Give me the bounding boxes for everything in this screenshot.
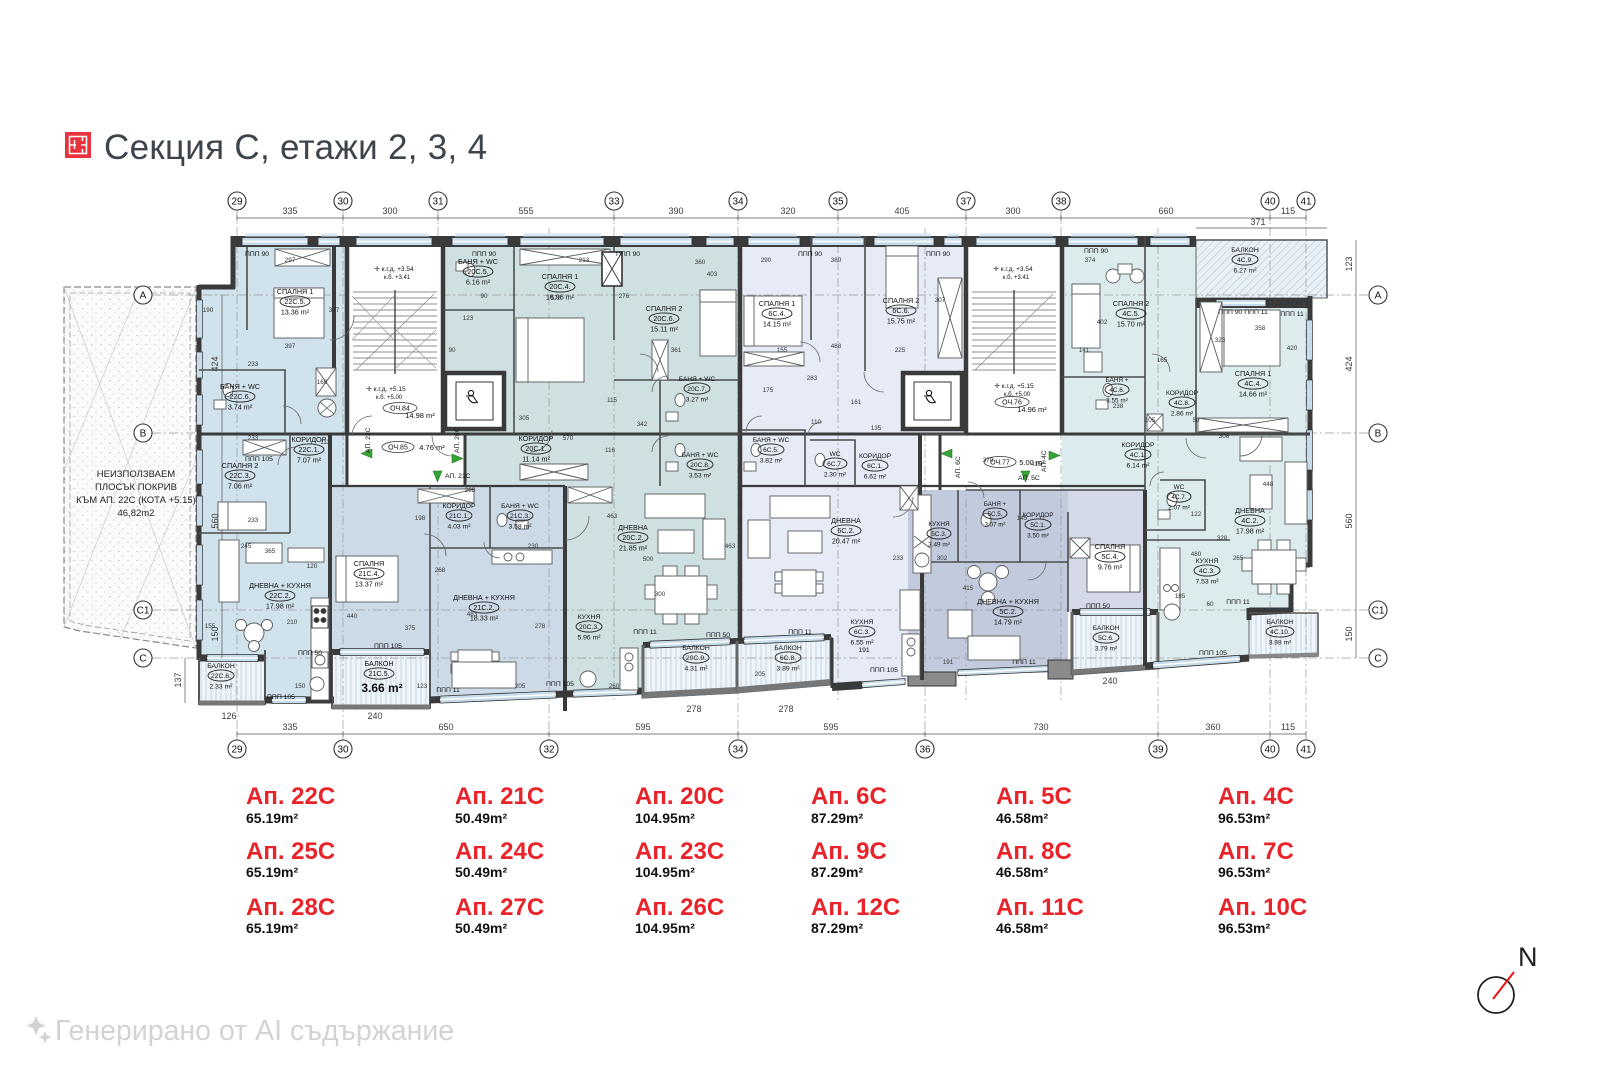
svg-text:115: 115 — [1281, 722, 1295, 732]
svg-text:СПАЛНЯ 1: СПАЛНЯ 1 — [1235, 369, 1271, 378]
svg-text:4.31 m²: 4.31 m² — [684, 666, 708, 673]
svg-text:22C.1.: 22C.1. — [298, 445, 319, 454]
svg-text:90: 90 — [448, 347, 456, 354]
svg-text:20C.3.: 20C.3. — [579, 624, 599, 631]
svg-text:5.96 m²: 5.96 m² — [577, 635, 601, 642]
svg-text:21C.4.: 21C.4. — [358, 569, 379, 578]
svg-text:245: 245 — [241, 543, 252, 550]
svg-text:323: 323 — [1215, 337, 1226, 344]
svg-text:34: 34 — [732, 744, 744, 755]
svg-text:305: 305 — [519, 415, 530, 422]
svg-text:Ап. 27C: Ап. 27C — [455, 894, 544, 921]
svg-text:463: 463 — [725, 543, 736, 550]
svg-text:ДНЕВНА: ДНЕВНА — [618, 523, 648, 532]
svg-text:4C.7.: 4C.7. — [1171, 494, 1186, 501]
svg-text:КУХНЯ: КУХНЯ — [928, 521, 950, 528]
svg-text:104.95m²: 104.95m² — [635, 810, 695, 826]
svg-text:3.49 m²: 3.49 m² — [928, 542, 950, 549]
svg-text:4C.5.: 4C.5. — [1122, 309, 1139, 318]
svg-text:КОРИДОР: КОРИДОР — [519, 434, 554, 443]
svg-text:БАНЯ + WC: БАНЯ + WC — [679, 376, 716, 383]
svg-text:5C.3.: 5C.3. — [931, 531, 946, 538]
svg-text:90: 90 — [480, 293, 488, 300]
svg-text:87.29m²: 87.29m² — [811, 864, 863, 880]
svg-text:АП. 4C: АП. 4C — [1041, 450, 1048, 472]
svg-text:КОРИДОР: КОРИДОР — [859, 453, 892, 460]
svg-text:КУХНЯ: КУХНЯ — [578, 614, 601, 621]
svg-text:5C.6.: 5C.6. — [1098, 635, 1114, 642]
svg-text:СПАЛНЯ: СПАЛНЯ — [354, 559, 384, 568]
svg-text:15.75 m²: 15.75 m² — [887, 317, 916, 326]
svg-text:448: 448 — [1263, 481, 1274, 488]
svg-text:375: 375 — [405, 625, 416, 632]
svg-text:22C.6.: 22C.6. — [229, 392, 250, 401]
svg-text:ППП 105: ППП 105 — [1199, 650, 1227, 657]
svg-text:141: 141 — [1079, 347, 1090, 354]
svg-text:КУХНЯ: КУХНЯ — [1196, 558, 1219, 565]
svg-text:268: 268 — [465, 487, 476, 494]
svg-text:191: 191 — [943, 659, 954, 666]
svg-text:✛ к.г.д. +3.54: ✛ к.г.д. +3.54 — [993, 265, 1033, 273]
svg-text:14.96 m²: 14.96 m² — [1017, 405, 1047, 414]
svg-text:41: 41 — [1300, 196, 1312, 207]
svg-text:3.89 m²: 3.89 m² — [776, 666, 800, 673]
svg-text:3.58 m²: 3.58 m² — [508, 524, 532, 531]
svg-text:105: 105 — [1145, 417, 1156, 424]
svg-text:СПАЛНЯ 2: СПАЛНЯ 2 — [646, 304, 682, 313]
svg-text:ППП 90: ППП 90 — [245, 251, 269, 258]
svg-text:Ап. 7C: Ап. 7C — [1218, 838, 1294, 865]
svg-text:АП. 22C: АП. 22C — [365, 427, 372, 453]
svg-text:175: 175 — [763, 387, 774, 394]
svg-text:ДНЕВНА: ДНЕВНА — [1235, 506, 1265, 515]
svg-text:374: 374 — [1085, 257, 1096, 264]
svg-text:302: 302 — [937, 555, 948, 562]
svg-text:Ап. 23C: Ап. 23C — [635, 838, 724, 865]
svg-text:41: 41 — [1300, 744, 1312, 755]
svg-text:WC: WC — [1174, 484, 1185, 491]
svg-text:17.98 m²: 17.98 m² — [266, 602, 295, 611]
svg-text:137: 137 — [173, 672, 183, 687]
svg-text:6C.8.: 6C.8. — [780, 655, 796, 662]
svg-text:36: 36 — [919, 744, 931, 755]
svg-text:60: 60 — [1206, 601, 1214, 608]
svg-text:C1: C1 — [137, 605, 150, 616]
svg-text:ППП 11: ППП 11 — [633, 629, 657, 636]
svg-text:300: 300 — [655, 591, 666, 598]
svg-text:ДНЕВНА: ДНЕВНА — [831, 516, 861, 525]
svg-text:20.47 m²: 20.47 m² — [832, 537, 861, 546]
svg-text:50: 50 — [1192, 417, 1200, 424]
svg-text:СПАЛНЯ 1: СПАЛНЯ 1 — [277, 287, 313, 296]
svg-text:Секция C, етажи 2, 3, 4: Секция C, етажи 2, 3, 4 — [104, 128, 487, 167]
svg-text:96.53m²: 96.53m² — [1218, 920, 1270, 936]
svg-text:АП. 20C: АП. 20C — [454, 427, 461, 453]
svg-text:371: 371 — [1250, 217, 1265, 227]
svg-text:Ап. 9C: Ап. 9C — [811, 838, 887, 865]
svg-text:65.19m²: 65.19m² — [246, 810, 298, 826]
svg-text:НЕИЗПОЛЗВАЕМ: НЕИЗПОЛЗВАЕМ — [97, 469, 176, 480]
svg-text:320: 320 — [780, 206, 795, 216]
svg-text:365: 365 — [265, 548, 276, 555]
svg-text:198: 198 — [415, 515, 426, 522]
svg-text:ППП 90: ППП 90 — [616, 251, 640, 258]
svg-text:ППП 11: ППП 11 — [1280, 311, 1304, 318]
svg-text:13.37 m²: 13.37 m² — [355, 580, 384, 589]
svg-text:20C.7.: 20C.7. — [687, 386, 707, 393]
svg-text:20C.8.: 20C.8. — [690, 462, 710, 469]
svg-text:БАЛКОН: БАЛКОН — [682, 645, 710, 652]
svg-text:278: 278 — [535, 623, 546, 630]
svg-text:233: 233 — [893, 555, 904, 562]
svg-text:ППП 11: ППП 11 — [1012, 659, 1036, 666]
svg-text:20C.4.: 20C.4. — [549, 282, 570, 291]
svg-text:ППП 11: ППП 11 — [1226, 599, 1250, 606]
svg-text:46.58m²: 46.58m² — [996, 864, 1048, 880]
svg-text:328: 328 — [1217, 535, 1228, 542]
svg-text:Ап. 5C: Ап. 5C — [996, 783, 1072, 810]
svg-text:300: 300 — [382, 206, 397, 216]
svg-text:Ап. 22C: Ап. 22C — [246, 783, 335, 810]
svg-text:360: 360 — [695, 259, 706, 266]
svg-text:Ап. 11C: Ап. 11C — [996, 894, 1084, 921]
svg-text:104.95m²: 104.95m² — [635, 920, 695, 936]
svg-text:335: 335 — [282, 206, 297, 216]
svg-text:✛ к.г.д. +5.15: ✛ к.г.д. +5.15 — [366, 385, 406, 393]
svg-text:Ап. 26C: Ап. 26C — [635, 894, 724, 921]
svg-text:4C.1.: 4C.1. — [1130, 452, 1146, 459]
svg-text:46,82m2: 46,82m2 — [118, 508, 155, 519]
svg-text:50.49m²: 50.49m² — [455, 920, 507, 936]
svg-text:4C.10.: 4C.10. — [1270, 629, 1290, 636]
svg-text:50.49m²: 50.49m² — [455, 864, 507, 880]
svg-text:50.49m²: 50.49m² — [455, 810, 507, 826]
svg-text:6.62 m²: 6.62 m² — [864, 474, 887, 481]
svg-text:ППП 11: ППП 11 — [788, 629, 812, 636]
svg-text:370: 370 — [983, 457, 994, 464]
svg-text:488: 488 — [831, 343, 842, 350]
svg-text:БАЛКОН: БАЛКОН — [364, 659, 393, 668]
svg-text:265: 265 — [1233, 555, 1244, 562]
svg-text:360: 360 — [1205, 722, 1220, 732]
svg-text:ППП 105: ППП 105 — [870, 667, 898, 674]
svg-text:161: 161 — [851, 399, 862, 406]
svg-text:C: C — [1374, 653, 1381, 664]
svg-text:B: B — [140, 428, 147, 439]
svg-text:4C.4.: 4C.4. — [1244, 379, 1261, 388]
svg-text:6C.2.: 6C.2. — [837, 526, 854, 535]
svg-text:30: 30 — [337, 196, 349, 207]
svg-text:Ап. 6C: Ап. 6C — [811, 783, 887, 810]
svg-text:6C.3.: 6C.3. — [854, 629, 870, 636]
svg-text:БАНЯ +: БАНЯ + — [984, 501, 1007, 508]
svg-text:38: 38 — [1055, 196, 1067, 207]
svg-text:КУХНЯ: КУХНЯ — [851, 619, 874, 626]
svg-text:165: 165 — [1157, 357, 1168, 364]
svg-text:22C.5.: 22C.5. — [284, 297, 305, 306]
svg-text:6.14 m²: 6.14 m² — [1126, 463, 1150, 470]
svg-text:96.53m²: 96.53m² — [1218, 810, 1270, 826]
svg-text:ППП 105: ППП 105 — [245, 456, 273, 463]
svg-text:424: 424 — [1344, 356, 1354, 371]
svg-text:276: 276 — [619, 293, 630, 300]
svg-text:660: 660 — [1158, 206, 1173, 216]
svg-text:4C.3.: 4C.3. — [1199, 568, 1215, 575]
svg-text:65.19m²: 65.19m² — [246, 864, 298, 880]
svg-text:ДНЕВНА + КУХНЯ: ДНЕВНА + КУХНЯ — [453, 593, 515, 602]
svg-text:240: 240 — [367, 711, 382, 721]
svg-text:21C.3.: 21C.3. — [510, 513, 530, 520]
svg-text:СПАЛНЯ 2: СПАЛНЯ 2 — [1113, 299, 1149, 308]
svg-text:A: A — [1375, 290, 1382, 301]
svg-text:ПЛОСЪК ПОКРИВ: ПЛОСЪК ПОКРИВ — [95, 482, 177, 493]
svg-text:233: 233 — [248, 517, 259, 524]
svg-text:160: 160 — [317, 379, 328, 386]
svg-text:278: 278 — [686, 704, 701, 714]
svg-text:358: 358 — [1255, 325, 1266, 332]
svg-text:500: 500 — [643, 556, 654, 563]
svg-text:3.53 m²: 3.53 m² — [689, 473, 712, 480]
svg-text:210: 210 — [287, 619, 298, 626]
svg-text:555: 555 — [518, 206, 533, 216]
svg-text:37: 37 — [960, 196, 972, 207]
svg-text:29: 29 — [231, 196, 243, 207]
svg-text:ППП 105: ППП 105 — [267, 694, 295, 701]
svg-text:123: 123 — [417, 683, 428, 690]
svg-text:ППП 50: ППП 50 — [298, 650, 322, 657]
svg-text:380: 380 — [831, 257, 842, 264]
svg-text:БАЛКОН: БАЛКОН — [1093, 625, 1120, 632]
svg-text:5C.2.: 5C.2. — [999, 607, 1016, 616]
svg-text:335: 335 — [282, 722, 297, 732]
svg-text:155: 155 — [777, 347, 788, 354]
svg-text:ДНЕВНА + КУХНЯ: ДНЕВНА + КУХНЯ — [977, 597, 1039, 606]
svg-text:4.03 m²: 4.03 m² — [447, 524, 471, 531]
svg-text:СПАЛНЯ 1: СПАЛНЯ 1 — [759, 299, 795, 308]
svg-text:БАЛКОН: БАЛКОН — [207, 663, 235, 670]
svg-text:123: 123 — [463, 315, 474, 322]
svg-text:3.79 m²: 3.79 m² — [1095, 646, 1118, 653]
svg-text:5C.5.: 5C.5. — [988, 511, 1003, 518]
svg-text:96.53m²: 96.53m² — [1218, 864, 1270, 880]
svg-text:415: 415 — [1031, 461, 1042, 468]
svg-text:ППП 105: ППП 105 — [546, 681, 574, 688]
svg-text:205: 205 — [515, 683, 526, 690]
svg-text:233: 233 — [248, 361, 259, 368]
svg-text:111: 111 — [320, 439, 330, 446]
svg-text:ППП 90: ППП 90 — [798, 251, 822, 258]
svg-text:ППП 90: ППП 90 — [472, 251, 496, 258]
svg-text:WC: WC — [830, 451, 841, 458]
svg-text:22C.3.: 22C.3. — [229, 471, 250, 480]
svg-text:СПАЛНЯ: СПАЛНЯ — [1095, 542, 1125, 551]
svg-text:35: 35 — [832, 196, 844, 207]
svg-text:104.95m²: 104.95m² — [635, 864, 695, 880]
svg-text:20C.5.: 20C.5. — [467, 267, 488, 276]
svg-text:4C.2.: 4C.2. — [1241, 516, 1258, 525]
svg-text:БАНЯ + WC: БАНЯ + WC — [501, 503, 539, 510]
svg-text:402: 402 — [1097, 319, 1108, 326]
svg-text:150: 150 — [295, 683, 306, 690]
svg-text:ДНЕВНА + КУХНЯ: ДНЕВНА + КУХНЯ — [249, 581, 311, 590]
svg-text:390: 390 — [668, 206, 683, 216]
svg-text:КОРИДОР: КОРИДОР — [1121, 442, 1154, 449]
svg-text:КЪМ АП. 22C (КОТА +5.15): КЪМ АП. 22C (КОТА +5.15) — [76, 495, 196, 506]
svg-text:5C.1.: 5C.1. — [1030, 522, 1045, 529]
svg-text:21C.1.: 21C.1. — [449, 513, 469, 520]
svg-text:307: 307 — [935, 297, 946, 304]
svg-text:30: 30 — [337, 744, 349, 755]
svg-text:ППП 50: ППП 50 — [1086, 603, 1110, 610]
svg-text:3.07 m²: 3.07 m² — [985, 522, 1006, 529]
svg-text:230: 230 — [528, 543, 539, 550]
svg-text:225: 225 — [895, 347, 906, 354]
svg-text:Ап. 25C: Ап. 25C — [246, 838, 335, 865]
svg-text:Ап. 8C: Ап. 8C — [996, 838, 1072, 865]
svg-text:6C.7.: 6C.7. — [827, 461, 843, 468]
svg-text:120: 120 — [307, 563, 318, 570]
svg-text:87.29m²: 87.29m² — [811, 920, 863, 936]
svg-text:АП. 21C: АП. 21C — [445, 473, 471, 480]
svg-text:463: 463 — [607, 513, 618, 520]
svg-text:415: 415 — [963, 585, 974, 592]
svg-text:БАНЯ +: БАНЯ + — [1105, 377, 1128, 384]
svg-text:570: 570 — [551, 295, 562, 302]
svg-text:21.85 m²: 21.85 m² — [619, 544, 648, 553]
svg-text:20C.9.: 20C.9. — [686, 655, 706, 662]
svg-text:115: 115 — [1281, 206, 1295, 216]
svg-text:65.19m²: 65.19m² — [246, 920, 298, 936]
svg-text:к.б. +3.41: к.б. +3.41 — [384, 275, 411, 281]
svg-text:4C.9.: 4C.9. — [1237, 257, 1253, 264]
svg-text:278: 278 — [778, 704, 793, 714]
svg-text:20C.2.: 20C.2. — [622, 533, 643, 542]
svg-text:2.30 m²: 2.30 m² — [824, 472, 847, 479]
svg-text:2.86 m²: 2.86 m² — [1171, 411, 1194, 418]
svg-text:22C.2.: 22C.2. — [269, 591, 290, 600]
svg-text:ОЧ.85: ОЧ.85 — [388, 445, 408, 452]
svg-text:ППП 50: ППП 50 — [706, 632, 730, 639]
svg-text:424: 424 — [210, 356, 220, 371]
svg-text:308: 308 — [1219, 433, 1230, 440]
svg-text:21C.5.: 21C.5. — [368, 669, 389, 678]
svg-text:560: 560 — [1344, 513, 1354, 528]
svg-text:3.50 m²: 3.50 m² — [1027, 533, 1049, 540]
svg-text:Ап. 28C: Ап. 28C — [246, 894, 335, 921]
svg-text:238: 238 — [1113, 403, 1124, 410]
svg-text:145: 145 — [1017, 515, 1028, 522]
svg-text:650: 650 — [438, 722, 453, 732]
svg-text:405: 405 — [894, 206, 909, 216]
svg-text:283: 283 — [807, 375, 818, 382]
svg-text:483: 483 — [467, 611, 478, 618]
svg-text:377: 377 — [329, 307, 340, 314]
svg-text:C1: C1 — [1372, 605, 1385, 616]
svg-text:C: C — [139, 653, 146, 664]
svg-text:7.53 m²: 7.53 m² — [1195, 579, 1219, 586]
svg-text:110: 110 — [811, 419, 822, 426]
svg-text:34: 34 — [732, 196, 744, 207]
svg-text:3.82 m²: 3.82 m² — [760, 458, 783, 465]
svg-text:✛ к.г.д. +3.54: ✛ к.г.д. +3.54 — [374, 265, 414, 273]
svg-text:115: 115 — [607, 397, 618, 404]
svg-text:7.06 m²: 7.06 m² — [228, 482, 253, 491]
svg-text:300: 300 — [1005, 206, 1020, 216]
svg-text:440: 440 — [347, 613, 358, 620]
svg-text:ППП 105: ППП 105 — [374, 643, 402, 650]
svg-text:126: 126 — [221, 711, 236, 721]
svg-text:АП. 5C: АП. 5C — [1018, 475, 1040, 482]
svg-text:240: 240 — [1102, 676, 1117, 686]
svg-text:20C.6.: 20C.6. — [653, 314, 674, 323]
svg-text:6C.6.: 6C.6. — [892, 306, 909, 315]
svg-text:3.98 m²: 3.98 m² — [1269, 640, 1292, 647]
svg-text:4.76 m²: 4.76 m² — [419, 443, 445, 452]
svg-text:15.11 m²: 15.11 m² — [650, 325, 678, 334]
svg-text:к.б. +5.00: к.б. +5.00 — [376, 395, 403, 401]
svg-text:33: 33 — [608, 196, 620, 207]
svg-text:ППП 90: ППП 90 — [926, 251, 950, 258]
svg-text:40: 40 — [1264, 744, 1276, 755]
svg-text:4C.8.: 4C.8. — [1174, 400, 1190, 407]
svg-text:361: 361 — [671, 347, 682, 354]
svg-text:ППП 11: ППП 11 — [436, 687, 460, 694]
svg-text:14.79 m²: 14.79 m² — [994, 618, 1023, 627]
svg-text:14.98 m²: 14.98 m² — [405, 411, 435, 420]
svg-text:46.58m²: 46.58m² — [996, 810, 1048, 826]
svg-text:297: 297 — [285, 257, 296, 264]
svg-text:БАЛКОН: БАЛКОН — [1231, 247, 1259, 254]
svg-text:39: 39 — [1152, 744, 1164, 755]
svg-text:150: 150 — [1344, 626, 1354, 641]
svg-text:14.15 m²: 14.15 m² — [763, 320, 792, 329]
svg-text:14.66 m²: 14.66 m² — [1239, 390, 1268, 399]
svg-text:Ап. 20C: Ап. 20C — [635, 783, 724, 810]
svg-text:595: 595 — [823, 722, 838, 732]
svg-text:✛ к.г.д. +5.15: ✛ к.г.д. +5.15 — [994, 382, 1034, 390]
svg-text:Ап. 12C: Ап. 12C — [811, 894, 900, 921]
svg-text:СПАЛНЯ 2: СПАЛНЯ 2 — [883, 296, 919, 305]
svg-text:6C.4.: 6C.4. — [768, 309, 785, 318]
svg-text:КОРИДОР: КОРИДОР — [442, 503, 475, 510]
svg-text:Ап. 10C: Ап. 10C — [1218, 894, 1307, 921]
svg-text:290: 290 — [761, 257, 772, 264]
svg-text:17.98 m²: 17.98 m² — [1236, 527, 1265, 536]
svg-text:480: 480 — [1191, 551, 1202, 558]
svg-text:к.б. +3.41: к.б. +3.41 — [1003, 275, 1030, 281]
svg-text:122: 122 — [1191, 511, 1202, 518]
svg-text:190: 190 — [203, 307, 214, 314]
svg-text:46.58m²: 46.58m² — [996, 920, 1048, 936]
svg-text:20C.1.: 20C.1. — [525, 444, 546, 453]
svg-text:ППП 90: ППП 90 — [1084, 248, 1108, 255]
svg-text:6C.5.: 6C.5. — [763, 447, 779, 454]
svg-text:6.27 m²: 6.27 m² — [1233, 268, 1257, 275]
svg-text:2.07 m²: 2.07 m² — [1168, 505, 1190, 512]
svg-text:397: 397 — [285, 343, 296, 350]
svg-text:155: 155 — [205, 623, 216, 630]
svg-text:БАНЯ + WC: БАНЯ + WC — [220, 382, 260, 391]
svg-text:233: 233 — [248, 435, 259, 442]
svg-text:Ап. 24C: Ап. 24C — [455, 838, 544, 865]
svg-text:185: 185 — [1175, 593, 1186, 600]
svg-text:N: N — [1518, 942, 1538, 972]
svg-text:B: B — [1375, 428, 1382, 439]
svg-text:342: 342 — [637, 421, 648, 428]
svg-text:570: 570 — [563, 435, 574, 442]
svg-text:БАЛКОН: БАЛКОН — [774, 645, 802, 652]
svg-text:СПАЛНЯ 1: СПАЛНЯ 1 — [542, 272, 578, 281]
